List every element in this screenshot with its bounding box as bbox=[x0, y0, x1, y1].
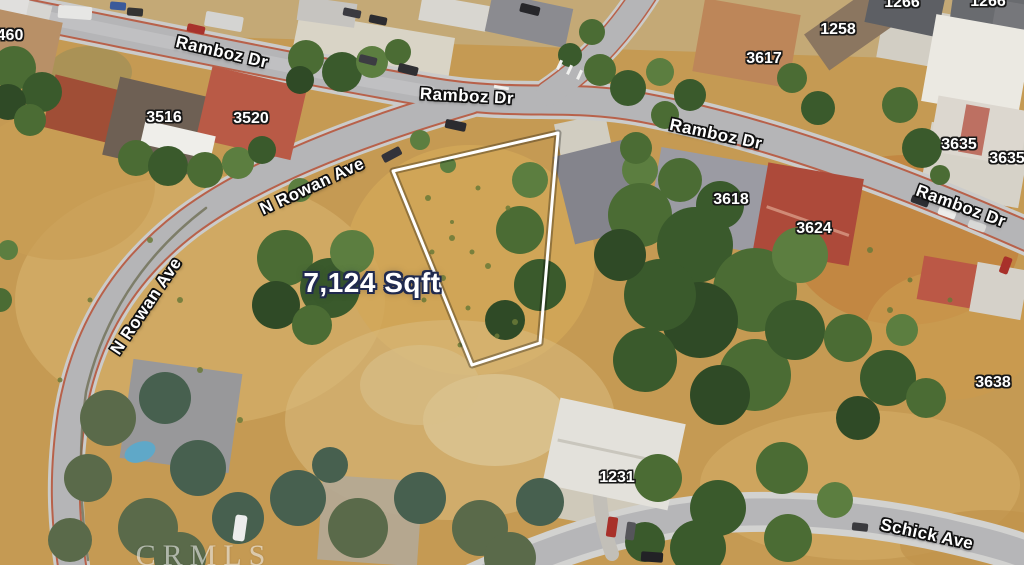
house-number-1266-b: 1266 bbox=[970, 0, 1006, 10]
house-number-3635-b: 3635 bbox=[989, 151, 1024, 167]
house-number-3635-a: 3635 bbox=[941, 137, 977, 153]
house-number-3617: 3617 bbox=[746, 51, 782, 67]
watermark-crmls: CRMLS bbox=[136, 541, 273, 565]
satellite-map: Ramboz Dr Ramboz Dr Ramboz Dr Ramboz Dr … bbox=[0, 0, 1024, 565]
house-number-3624: 3624 bbox=[796, 221, 832, 237]
house-number-1231: 1231 bbox=[599, 470, 635, 486]
house-number-3638: 3638 bbox=[975, 375, 1011, 391]
house-number-1258: 1258 bbox=[820, 22, 856, 38]
house-number-460: 460 bbox=[0, 28, 23, 44]
house-number-3520: 3520 bbox=[233, 111, 269, 127]
street-label-ramboz-2: Ramboz Dr bbox=[420, 85, 515, 107]
parcel-area-label: 7,124 Sqft bbox=[303, 269, 440, 297]
house-number-3618: 3618 bbox=[713, 192, 749, 208]
house-number-1266-a: 1266 bbox=[884, 0, 920, 11]
house-number-3516: 3516 bbox=[146, 110, 182, 126]
